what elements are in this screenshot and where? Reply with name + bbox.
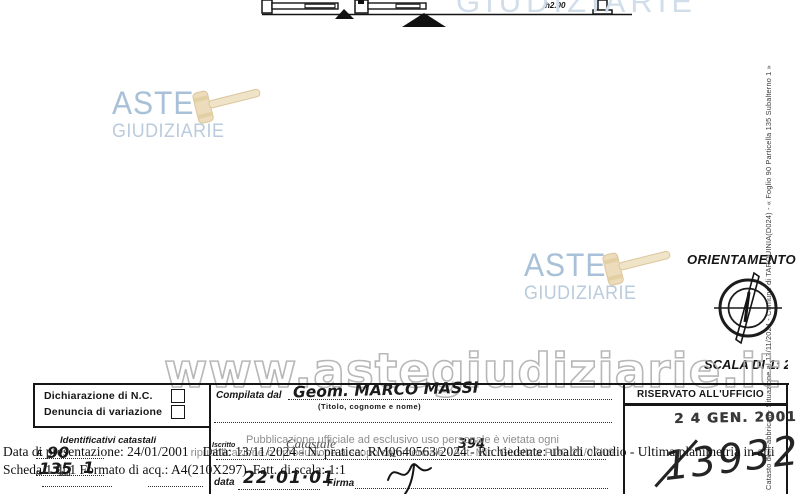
- identifiers-dotted-line-a: [42, 486, 112, 487]
- compiled-label: Compilata dal: [216, 390, 282, 401]
- identifiers-dotted-line-b: [148, 486, 203, 487]
- office-header-underline: [625, 403, 786, 406]
- declaration-var-checkbox: [171, 405, 185, 419]
- footer-line-1: Data di presentazione: 24/01/2001Data: 1…: [3, 444, 775, 460]
- declaration-nc-checkbox: [171, 389, 185, 403]
- orientation-title: ORIENTAMENTO: [687, 252, 796, 267]
- form-left-border: [33, 383, 35, 428]
- office-date-stamp: 2 4 GEN. 2001: [674, 409, 797, 427]
- date-dotted-line: [238, 489, 320, 490]
- gavel-icon: [598, 246, 680, 294]
- aste-giudiziarie-watermark-2: ASTE GIUDIZIARIE: [524, 249, 644, 303]
- date-label: data: [214, 477, 235, 488]
- declaration-var-label: Denuncia di variazione: [44, 406, 162, 418]
- sheet-info-text: Scheda 1 di 1 Formato di acq.: A4(210X29…: [3, 462, 247, 477]
- scanned-cadastral-document: h2.00 GIUDIZIARIE ASTE GIUDIZIARIE ASTE …: [0, 0, 798, 494]
- gavel-icon: [188, 84, 270, 132]
- declaration-box-bottom-border: [33, 426, 210, 428]
- presentation-date-text: Data di presentazione: 24/01/2001: [3, 444, 189, 459]
- compiled-hint: (Titolo, cognome e nome): [318, 402, 421, 411]
- watermark-partial-text: GIUDIZIARIE: [456, 0, 697, 20]
- footer-line-2: Scheda 1 di 1 Formato di acq.: A4(210X29…: [3, 462, 346, 478]
- middle-dotted-line: [214, 422, 612, 423]
- scale-factor-text: Fatt. di scala: 1:1: [253, 462, 346, 477]
- declaration-nc-label: Dichiarazione di N.C.: [44, 390, 153, 402]
- compiled-dotted-line: [288, 399, 612, 400]
- request-info-text: Data: 13/11/2024 - N. pratica: RM0640563…: [203, 444, 775, 459]
- signature-icon: [383, 455, 441, 494]
- compass-icon: [712, 270, 784, 346]
- signature-label: Firma: [327, 478, 354, 489]
- office-header: RISERVATO ALL'UFFICIO: [637, 389, 764, 400]
- aste-giudiziarie-watermark-1: ASTE GIUDIZIARIE: [112, 87, 232, 141]
